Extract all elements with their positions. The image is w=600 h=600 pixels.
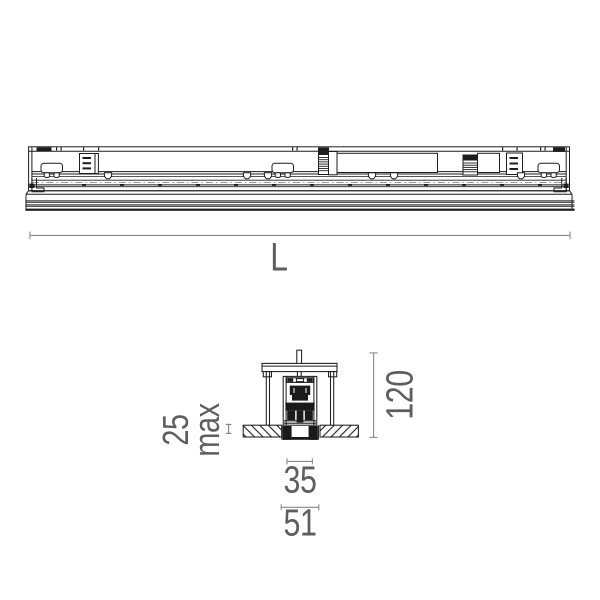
ceiling-panel bbox=[243, 425, 358, 437]
lower-profile bbox=[25, 191, 574, 211]
trim-flange bbox=[282, 425, 319, 440]
section-view bbox=[243, 350, 358, 440]
length-dimension-label: L bbox=[270, 236, 287, 281]
spring-pack-middle bbox=[319, 148, 338, 175]
cutout-dimension-label: 51 bbox=[283, 503, 316, 546]
height-dimension-label: 120 bbox=[380, 370, 423, 420]
recess-depth-label: 25 max bbox=[160, 403, 222, 456]
length-dimension-line bbox=[30, 232, 570, 240]
connector-block-right bbox=[507, 153, 523, 175]
top-plate bbox=[262, 363, 337, 376]
mounting-clip-left bbox=[41, 163, 63, 177]
mounting-clip-right bbox=[538, 163, 560, 177]
connector-block-left bbox=[80, 154, 99, 174]
mounting-clip-middle bbox=[272, 163, 294, 177]
aperture-dimension-label: 35 bbox=[283, 460, 316, 503]
spring-pack-right bbox=[463, 155, 478, 175]
height-dimension-line bbox=[370, 353, 378, 438]
gear-cartridge bbox=[283, 376, 317, 425]
drawing-sheet: L 25 max 120 35 51 bbox=[0, 0, 600, 600]
recess-depth-suffix: max bbox=[191, 403, 222, 456]
elevation-view bbox=[25, 147, 574, 211]
